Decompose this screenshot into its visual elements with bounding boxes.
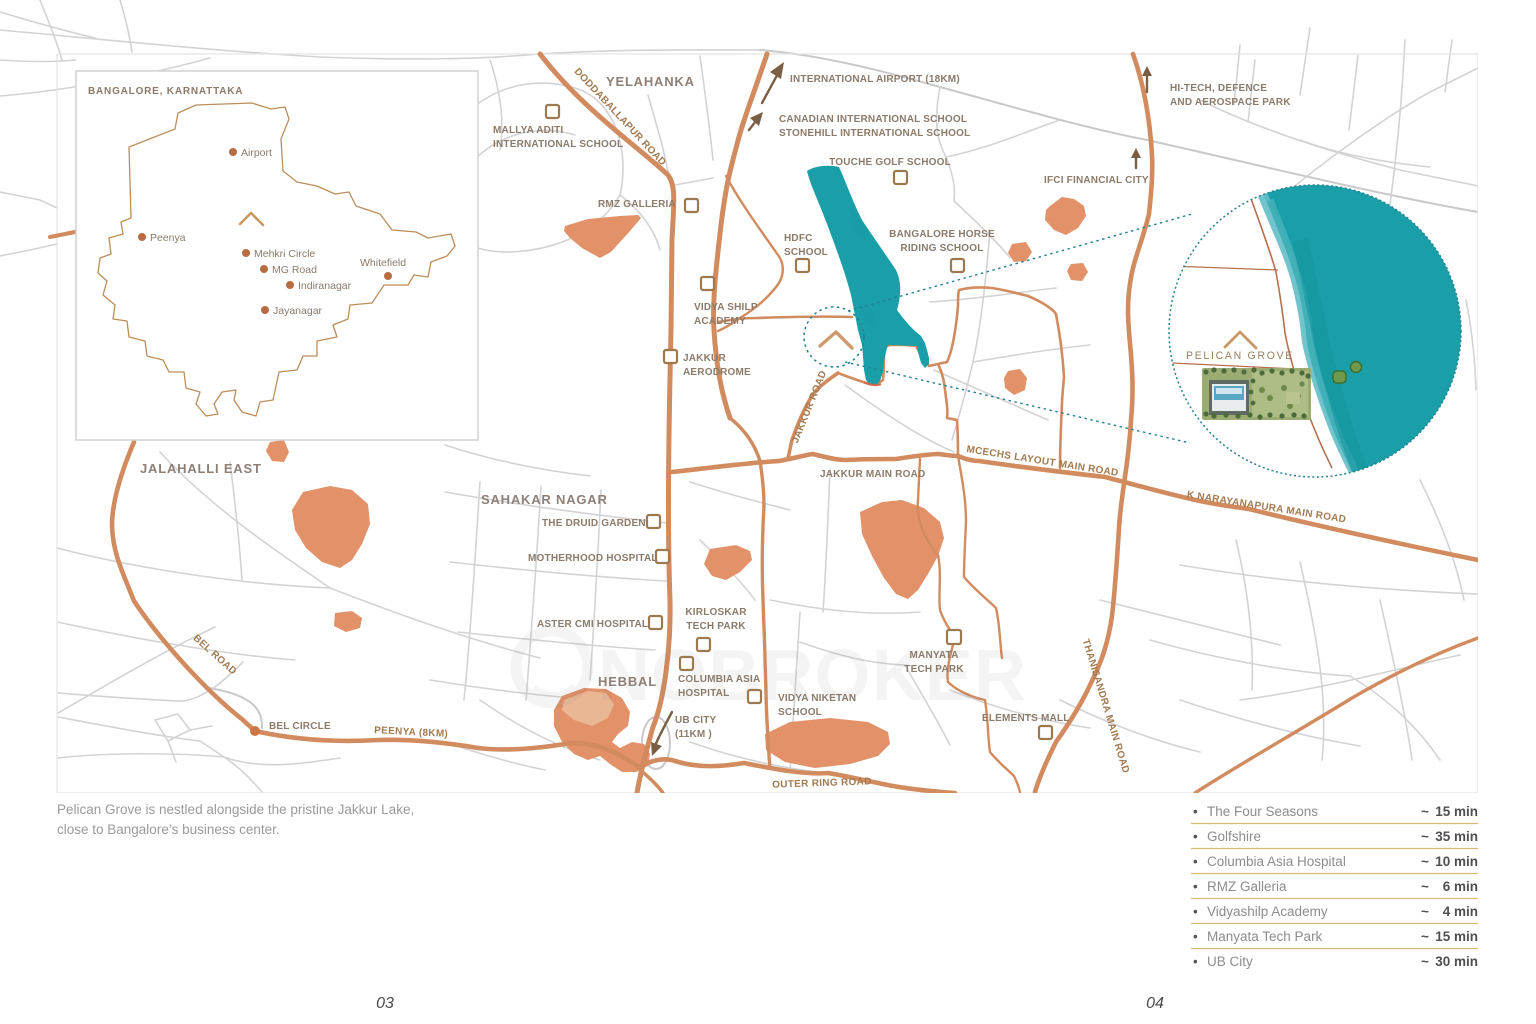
svg-text:30 min: 30 min: [1435, 954, 1478, 969]
svg-text:INTERNATIONAL AIRPORT (18KM): INTERNATIONAL AIRPORT (18KM): [790, 74, 960, 85]
svg-text:CANADIAN INTERNATIONAL SCHOOL: CANADIAN INTERNATIONAL SCHOOL: [779, 114, 967, 125]
svg-text:close to Bangalore’s business: close to Bangalore’s business center.: [57, 822, 280, 837]
svg-text:15 min: 15 min: [1435, 929, 1478, 944]
svg-text:JALAHALLI EAST: JALAHALLI EAST: [140, 461, 262, 476]
svg-text:Vidyashilp Academy: Vidyashilp Academy: [1207, 904, 1328, 919]
svg-text:ACADEMY: ACADEMY: [694, 316, 746, 327]
svg-text:HEBBAL: HEBBAL: [598, 674, 657, 689]
svg-text:~: ~: [1421, 829, 1429, 844]
svg-text:10 min: 10 min: [1435, 854, 1478, 869]
svg-text:Golfshire: Golfshire: [1207, 829, 1261, 844]
svg-text:NOBROKER: NOBROKER: [598, 636, 1026, 716]
svg-text:~: ~: [1421, 904, 1429, 919]
svg-text:ELEMENTS MALL: ELEMENTS MALL: [982, 713, 1070, 724]
svg-text:KIRLOSKAR: KIRLOSKAR: [685, 607, 747, 618]
svg-text:Columbia Asia Hospital: Columbia Asia Hospital: [1207, 854, 1346, 869]
svg-text:RIDING SCHOOL: RIDING SCHOOL: [900, 243, 983, 254]
svg-text:~: ~: [1421, 854, 1429, 869]
svg-text:STONEHILL INTERNATIONAL SCHOOL: STONEHILL INTERNATIONAL SCHOOL: [779, 128, 970, 139]
svg-text:Peenya: Peenya: [150, 232, 186, 244]
svg-text:MOTHERHOOD HOSPITAL: MOTHERHOOD HOSPITAL: [528, 553, 658, 564]
svg-text:04: 04: [1146, 995, 1164, 1012]
svg-text:HDFC: HDFC: [784, 233, 813, 244]
svg-text:15 min: 15 min: [1435, 804, 1478, 819]
svg-text:RMZ GALLERIA: RMZ GALLERIA: [598, 199, 676, 210]
svg-text:6 min: 6 min: [1443, 879, 1478, 894]
svg-text:•: •: [1193, 854, 1198, 869]
svg-text:VIDYA NIKETAN: VIDYA NIKETAN: [778, 693, 856, 704]
svg-text:SCHOOL: SCHOOL: [778, 707, 822, 718]
svg-text:Whitefield: Whitefield: [360, 257, 406, 269]
svg-text:Pelican Grove is nestled along: Pelican Grove is nestled alongside the p…: [57, 802, 414, 817]
svg-text:Airport: Airport: [241, 147, 272, 159]
svg-text:•: •: [1193, 829, 1198, 844]
svg-text:SCHOOL: SCHOOL: [784, 247, 828, 258]
svg-text:03: 03: [376, 995, 394, 1012]
svg-text:TOUCHE GOLF SCHOOL: TOUCHE GOLF SCHOOL: [829, 157, 951, 168]
svg-text:TECH PARK: TECH PARK: [904, 664, 964, 675]
svg-text:~: ~: [1421, 929, 1429, 944]
svg-text:•: •: [1193, 804, 1198, 819]
svg-text:~: ~: [1421, 804, 1429, 819]
svg-text:COLUMBIA ASIA: COLUMBIA ASIA: [678, 674, 760, 685]
svg-text:VIDYA SHILP: VIDYA SHILP: [694, 302, 758, 313]
svg-text:BEL CIRCLE: BEL CIRCLE: [269, 721, 331, 732]
svg-text:Mehkri Circle: Mehkri Circle: [254, 248, 315, 260]
svg-text:SAHAKAR NAGAR: SAHAKAR NAGAR: [481, 492, 608, 507]
svg-text:BANGALORE, KARNATTAKA: BANGALORE, KARNATTAKA: [88, 86, 243, 97]
svg-text:HI-TECH, DEFENCE: HI-TECH, DEFENCE: [1170, 83, 1267, 94]
svg-text:MG Road: MG Road: [272, 264, 317, 276]
svg-text:ASTER CMI HOSPITAL: ASTER CMI HOSPITAL: [537, 619, 648, 630]
svg-text:MALLYA ADITI: MALLYA ADITI: [493, 125, 563, 136]
svg-text:•: •: [1193, 879, 1198, 894]
svg-text:UB CITY: UB CITY: [675, 715, 717, 726]
svg-text:Manyata Tech Park: Manyata Tech Park: [1207, 929, 1323, 944]
svg-text:Jayanagar: Jayanagar: [273, 305, 323, 317]
svg-text:~: ~: [1421, 954, 1429, 969]
svg-text:IFCI FINANCIAL CITY: IFCI FINANCIAL CITY: [1044, 175, 1149, 186]
svg-text:PELICAN GROVE: PELICAN GROVE: [1186, 350, 1294, 362]
svg-text:JAKKUR: JAKKUR: [683, 353, 726, 364]
svg-text:RMZ Galleria: RMZ Galleria: [1207, 879, 1287, 894]
svg-text:MANYATA: MANYATA: [910, 650, 959, 661]
svg-text:The Four Seasons: The Four Seasons: [1207, 804, 1318, 819]
svg-text:•: •: [1193, 929, 1198, 944]
svg-text:•: •: [1193, 904, 1198, 919]
svg-text:AND AEROSPACE PARK: AND AEROSPACE PARK: [1170, 97, 1291, 108]
svg-text:4 min: 4 min: [1443, 904, 1478, 919]
svg-text:TECH PARK: TECH PARK: [686, 621, 746, 632]
svg-text:•: •: [1193, 954, 1198, 969]
svg-text:HOSPITAL: HOSPITAL: [678, 688, 729, 699]
svg-text:(11KM ): (11KM ): [675, 729, 712, 740]
svg-text:~: ~: [1421, 879, 1429, 894]
svg-text:BANGALORE HORSE: BANGALORE HORSE: [889, 229, 995, 240]
svg-text:35 min: 35 min: [1435, 829, 1478, 844]
svg-text:YELAHANKA: YELAHANKA: [606, 74, 695, 89]
svg-text:THE DRUID GARDEN: THE DRUID GARDEN: [542, 518, 646, 529]
svg-text:Indiranagar: Indiranagar: [298, 280, 352, 292]
svg-text:INTERNATIONAL SCHOOL: INTERNATIONAL SCHOOL: [493, 139, 623, 150]
svg-text:JAKKUR MAIN ROAD: JAKKUR MAIN ROAD: [820, 469, 925, 480]
svg-text:UB City: UB City: [1207, 954, 1253, 969]
svg-text:AERODROME: AERODROME: [683, 367, 751, 378]
